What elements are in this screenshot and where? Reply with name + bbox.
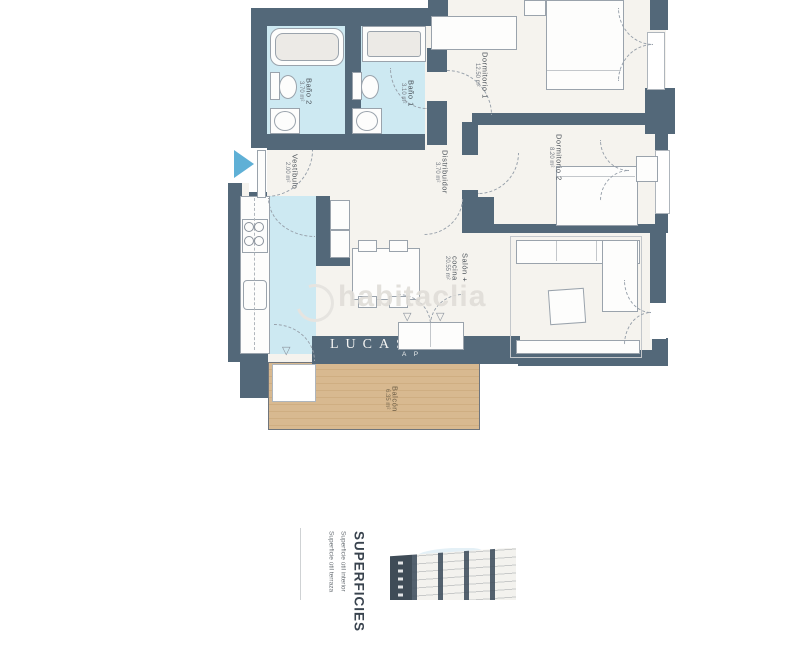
toilet-bowl	[361, 75, 379, 99]
wall-segment	[655, 212, 668, 233]
chair	[389, 240, 408, 252]
washbasin-bowl	[274, 111, 296, 131]
wall-segment	[655, 133, 668, 150]
building-photo	[382, 548, 520, 600]
room-label-bano2: Baño 2 3.70 m²	[296, 66, 314, 116]
sofa-bench	[516, 340, 640, 354]
legend-line: Superficie útil interior	[336, 531, 348, 651]
room-name: Distribuidor	[440, 144, 450, 200]
room-label-vestibulo: Vestíbulo 2.00 m²	[282, 146, 300, 198]
room-label-distribuidor: Distribuidor 3.70 m²	[432, 144, 450, 200]
stove-burner	[244, 236, 254, 246]
entrance-door-leaf	[257, 150, 266, 198]
counter-centerline	[254, 198, 255, 350]
stove-burner	[244, 222, 254, 232]
stove-burner	[254, 222, 264, 232]
room-area: 3.70 m²	[296, 66, 304, 116]
room-area: 12.50 m²	[472, 46, 480, 104]
wall-segment	[427, 101, 447, 145]
room-area: 3.70 m²	[432, 144, 440, 200]
bathtub-inner	[275, 33, 339, 61]
double-bed	[546, 0, 624, 90]
fridge	[330, 200, 350, 230]
legend-title: SUPERFICIES	[349, 531, 368, 651]
toilet-bowl	[279, 75, 297, 99]
kitchen-sink	[243, 280, 267, 310]
sofa-cushion-line	[556, 241, 557, 261]
habitaclia-watermark: habitaclia	[338, 280, 486, 314]
french-door-divider	[430, 323, 431, 347]
window-opening-marker: ▽	[282, 346, 290, 357]
wardrobe-handle	[636, 156, 658, 182]
wall-segment	[251, 8, 267, 136]
wall-segment	[472, 113, 652, 125]
building-dark-tower	[390, 555, 412, 600]
room-area: 8.20 m²	[546, 128, 554, 186]
entrance-arrow-icon	[234, 150, 254, 178]
tall-cabinet	[330, 230, 350, 258]
room-name: Dormitorio 2	[554, 128, 564, 186]
chair	[358, 240, 377, 252]
sofa-cushion-line	[596, 241, 597, 261]
room-label-balcon: Balcón 6.35 m²	[382, 376, 400, 422]
shower-tray-inner	[367, 31, 421, 57]
coffee-table	[548, 288, 586, 325]
bed-fold-line	[547, 70, 621, 71]
wall-segment	[462, 122, 478, 155]
balcony-door-gap-salon	[650, 303, 666, 339]
room-name: Baño 1	[406, 68, 416, 118]
room-label-dormitorio2: Dormitorio 2 8.20 m²	[546, 128, 564, 186]
wall-segment	[251, 134, 425, 150]
surface-legend: SUPERFICIES Superficie útil interior Sup…	[324, 531, 368, 651]
legend-divider	[300, 528, 301, 600]
agency-watermark-sub: A P	[402, 351, 421, 358]
room-name: Dormitorio 1	[480, 46, 490, 104]
nightstand	[524, 0, 546, 16]
washbasin-bowl	[356, 111, 378, 131]
wall-segment	[427, 48, 447, 72]
legend-line: Superficie útil terraza	[324, 531, 336, 651]
room-label-bano1: Baño 1 3.10 m²	[398, 68, 416, 118]
wall-segment	[251, 8, 433, 26]
room-area: 3.10 m²	[398, 68, 406, 118]
building-floor-lines	[412, 548, 516, 600]
room-label-dormitorio1: Dormitorio 1 12.50 m²	[472, 46, 490, 104]
wall-segment	[645, 88, 675, 134]
room-name: Vestíbulo	[290, 146, 300, 198]
building-render	[382, 548, 520, 600]
french-door-unit	[398, 322, 464, 350]
stove-burner	[254, 236, 264, 246]
room-name: Baño 2	[304, 66, 314, 116]
room-name: Balcón	[390, 376, 400, 422]
dresser	[431, 16, 517, 50]
room-area: 6.35 m²	[382, 376, 390, 422]
wall-segment	[240, 350, 268, 398]
room-area: 2.00 m²	[282, 146, 290, 198]
balcony-threshold	[272, 364, 316, 402]
wall-segment	[650, 233, 666, 305]
